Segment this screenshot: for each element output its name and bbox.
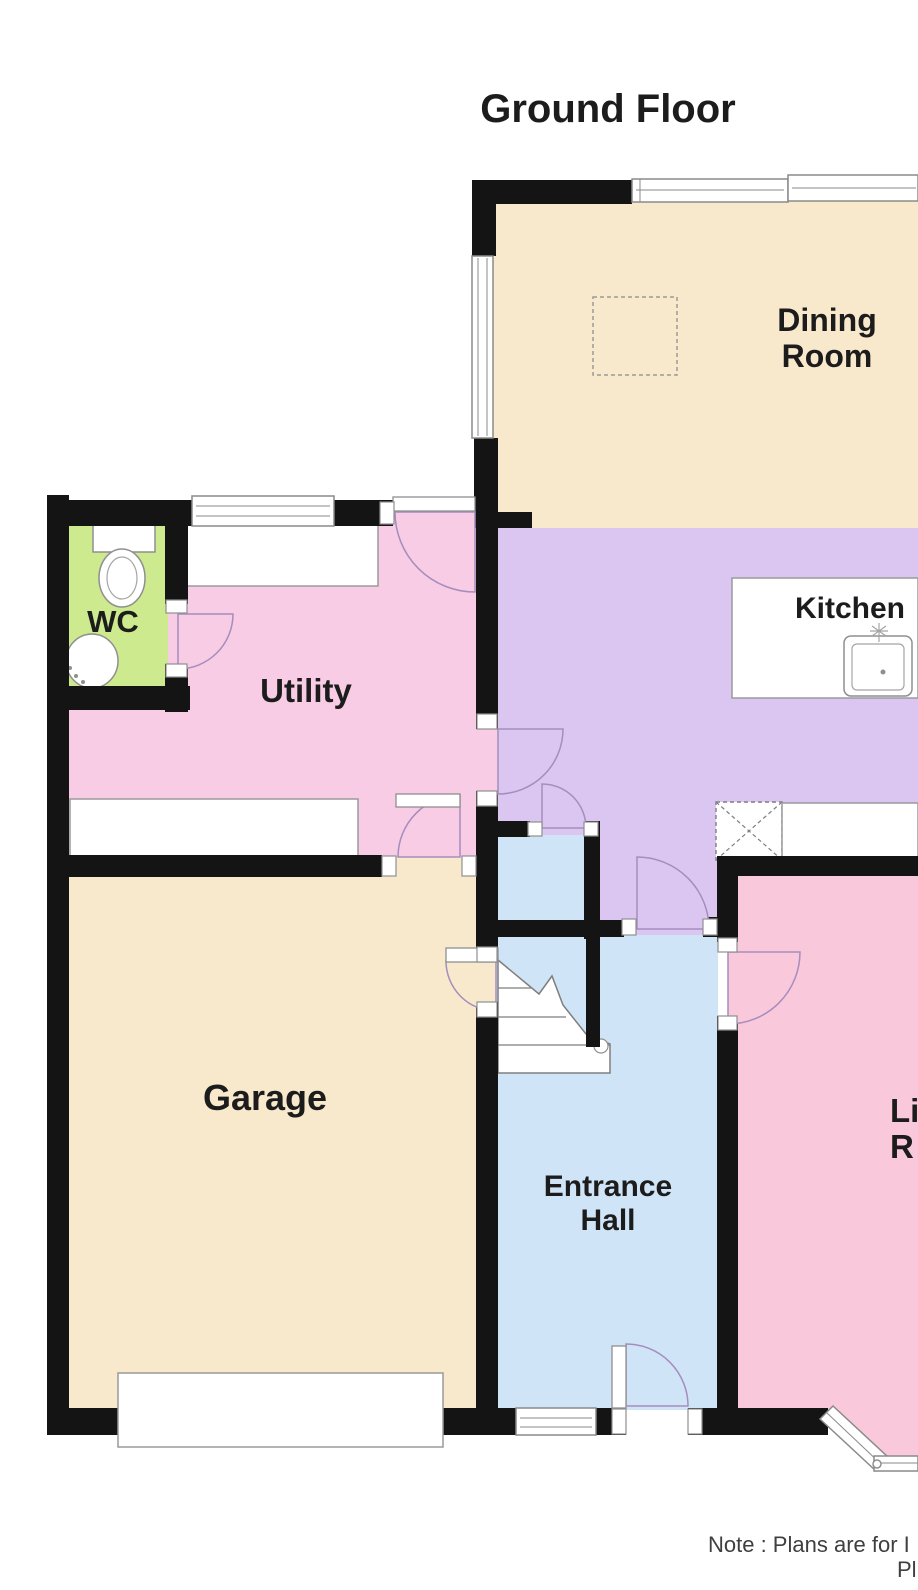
utility-counter-bottom — [70, 799, 358, 857]
garage-door — [118, 1373, 443, 1447]
wall-cupboard-top — [496, 821, 530, 837]
footer-note-line2: Pl — [897, 1557, 917, 1582]
window-hall-front — [516, 1408, 596, 1435]
living-room-label-line1: Li — [890, 1092, 918, 1129]
window-utility — [192, 496, 334, 526]
wall-wc-bottom — [68, 686, 190, 710]
footer-note-line1: Note : Plans are for I — [708, 1532, 910, 1557]
wall-exterior-bottom-right — [688, 1408, 828, 1435]
utility-label: Utility — [260, 672, 352, 709]
door-leaf-utility-garage — [396, 794, 460, 807]
wall-wc-right — [165, 522, 188, 604]
wall-central-mid — [476, 791, 498, 957]
wall-utility-garage — [68, 855, 382, 877]
living-room-label-line2: R — [890, 1128, 914, 1165]
wall-dining-left-lower — [474, 438, 498, 502]
wall-stair-side — [586, 937, 600, 1047]
wall-central-upper — [476, 524, 498, 729]
store-cupboard-floor — [496, 835, 586, 922]
door-leaf-front-door — [612, 1346, 626, 1408]
dining-room-label-line1: Dining — [777, 302, 877, 338]
window-dining-left — [472, 256, 493, 438]
wall-living-top — [717, 856, 918, 876]
garage-label: Garage — [203, 1077, 327, 1118]
wall-exterior-left — [47, 495, 69, 1435]
entrance-hall-label-line2: Hall — [580, 1204, 635, 1237]
wall-cupboard-bottom — [496, 920, 624, 937]
floor-plan: Ground Floor Dining Room Kitchen WC Util… — [0, 0, 918, 1590]
dining-room-label-line2: Room — [782, 338, 873, 374]
wc-basin-icon — [66, 634, 118, 688]
kitchen-label: Kitchen — [795, 592, 905, 625]
utility-counter-top — [176, 524, 378, 586]
floor-plan-page: Ground Floor Dining Room Kitchen WC Util… — [0, 0, 918, 1590]
wall-living-left-lower — [717, 1016, 738, 1408]
kitchen-counter-2 — [782, 803, 918, 860]
wall-kitchen-stub — [496, 512, 532, 528]
bay-window-post — [873, 1460, 881, 1468]
wc-label: WC — [87, 604, 139, 639]
door-leaf-utility-back — [393, 497, 475, 511]
wall-living-left-upper — [717, 856, 738, 942]
garage-floor — [68, 857, 498, 1410]
wall-central-lower — [476, 1002, 498, 1435]
entrance-hall-label-line1: Entrance — [544, 1170, 672, 1203]
wall-dining-left-upper — [472, 180, 496, 256]
page-title: Ground Floor — [480, 87, 736, 131]
wall-corner-block — [472, 500, 498, 528]
